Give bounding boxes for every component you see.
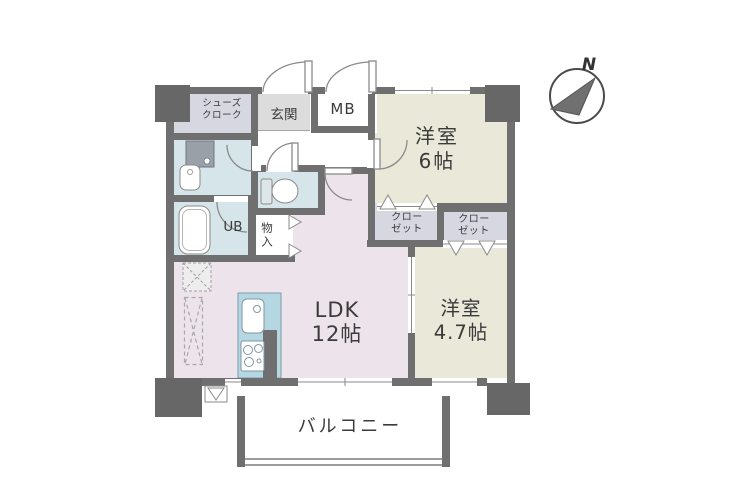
balcony-hatch [205,386,227,402]
label-western47-line1: 洋室 [401,297,521,321]
label-unit-bath: UB [216,219,250,235]
stove-icon [241,341,264,371]
label-shoes-closet-line1: シューズ [186,98,258,110]
label-shoes-closet-line2: クローク [186,110,258,122]
hatched-pillar [183,263,211,291]
floorplan: シューズ クローク 玄関 MB 洋室 6帖 クロー ゼット クロー ゼット UB… [0,0,750,499]
compass-north-label: N [577,55,601,75]
kitchen-wall-stub [263,330,277,378]
bathtub-icon [179,206,210,254]
label-closet-left-line1: クロー [374,212,440,224]
kitchen-sink-icon [242,299,264,333]
label-meter-box: MB [314,100,372,118]
label-closet-left-line2: ゼット [374,224,440,236]
label-western-room-6: 洋室 6帖 [377,124,497,174]
compass-icon [550,69,604,123]
label-closet-right: クロー ゼット [441,214,507,237]
entrance-door-opening [262,87,308,94]
label-shoes-closet: シューズ クローク [186,98,258,121]
label-ldk-line1: LDK [277,298,397,322]
label-ldk-line2: 12帖 [277,322,397,346]
washer-pan-icon [186,141,214,167]
label-closet-left: クロー ゼット [374,212,440,235]
label-western-room-47: 洋室 4.7帖 [401,297,521,344]
label-ldk: LDK 12帖 [277,298,397,346]
toilet-icon [261,179,298,204]
label-western47-line2: 4.7帖 [401,321,521,345]
meter-box-opening [325,87,372,94]
label-western6-line1: 洋室 [377,124,497,149]
label-closet-right-line2: ゼット [441,226,507,238]
label-balcony: バルコニー [250,412,450,438]
label-entrance: 玄関 [258,103,310,123]
label-storage: 物入 [259,214,275,256]
label-closet-right-line1: クロー [441,214,507,226]
washbasin-icon [180,165,200,190]
label-western6-line2: 6帖 [377,149,497,174]
